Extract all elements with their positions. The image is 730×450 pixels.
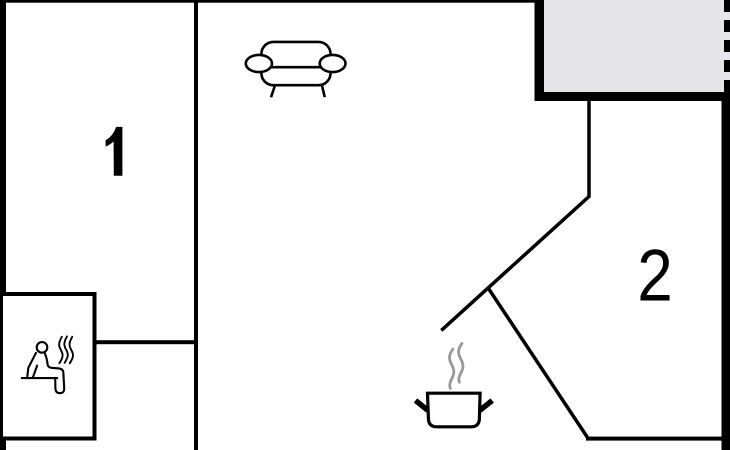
svg-text:2: 2 xyxy=(637,234,673,316)
